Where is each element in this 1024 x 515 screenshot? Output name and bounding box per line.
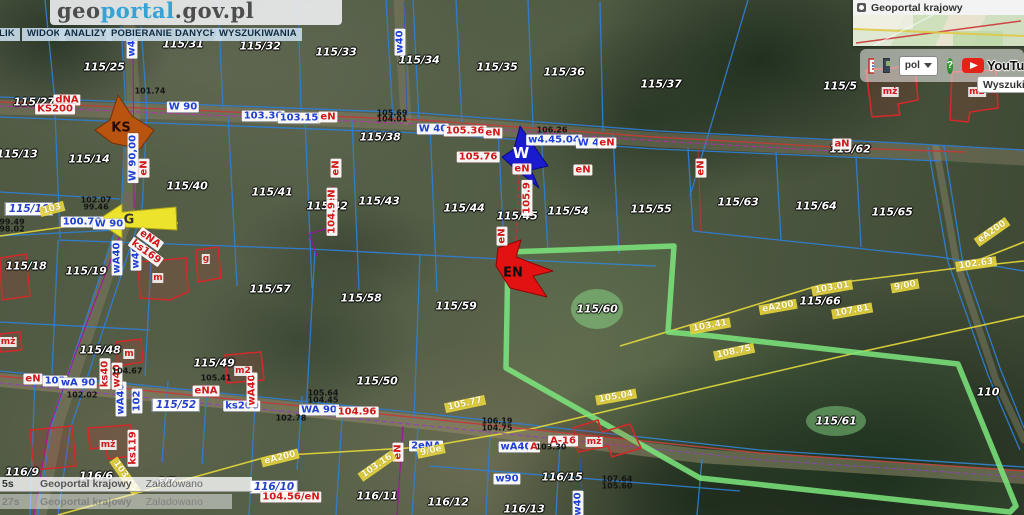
parcel-label: 115/43 bbox=[358, 195, 399, 208]
utility-label-red-vertical: ks40 bbox=[100, 359, 111, 390]
logo-text: geo bbox=[57, 0, 101, 23]
parcel-label: 115/48 bbox=[79, 344, 120, 357]
powerline-label-yellow: 108.75 bbox=[713, 343, 755, 361]
parcel-label: 115/40 bbox=[166, 180, 207, 193]
powerline-label-yellow: eA200 bbox=[974, 217, 1011, 247]
utility-label-red: 105.76 bbox=[457, 152, 500, 163]
building-label: g bbox=[202, 254, 210, 264]
parcel-label: 115/44 bbox=[443, 202, 484, 215]
en-marker-label: EN bbox=[503, 266, 523, 281]
parcel-label: 115/35 bbox=[476, 61, 517, 74]
powerline-label-yellow: 103.16 bbox=[357, 450, 396, 482]
parcel-label: 115/63 bbox=[717, 196, 758, 209]
youtube-button[interactable]: YouTu bbox=[962, 58, 1024, 73]
language-select[interactable]: pol bbox=[899, 56, 938, 76]
load-status: Załadowano bbox=[146, 478, 203, 490]
load-status: Załadowano bbox=[146, 496, 203, 508]
map-canvas[interactable]: 115/31115/32115/25115/33115/34115/35115/… bbox=[0, 0, 1024, 515]
powerline-label-yellow: 9/00 bbox=[890, 279, 919, 294]
powerline-label-yellow: 105.77 bbox=[444, 395, 486, 413]
utility-label-red-vertical: 104.9 bbox=[327, 200, 338, 236]
parcel-label: 115/33 bbox=[315, 46, 356, 59]
utility-label-red: eN bbox=[318, 112, 337, 123]
parcel-label: 115/58 bbox=[340, 292, 381, 305]
parcel-label: 115/65 bbox=[871, 206, 912, 219]
overview-map-panel[interactable]: Geoportal krajowy bbox=[853, 0, 1024, 46]
building-label: mż bbox=[0, 337, 16, 347]
utility-label-red: eN bbox=[23, 374, 42, 385]
minimap-content bbox=[853, 15, 1024, 46]
logo-text: portal bbox=[101, 0, 175, 23]
utility-label-blue: wA 90 bbox=[59, 378, 97, 389]
status-bar-row: 5s Geoportal krajowy Załadowano bbox=[0, 477, 252, 492]
building-label: m bbox=[152, 273, 163, 283]
utility-label-red: 105.36 bbox=[444, 126, 487, 137]
elevation-label: 102.02 bbox=[67, 391, 98, 400]
utility-label-red: eN bbox=[573, 165, 592, 176]
utility-label-blue-vertical: W 90,00 bbox=[128, 133, 139, 183]
utility-label-red: eNA bbox=[193, 386, 220, 397]
load-time: 27s bbox=[0, 496, 28, 508]
building-label: m2 bbox=[234, 366, 252, 376]
menu-item-analizy[interactable]: ANALIZY bbox=[59, 28, 112, 41]
g-marker-label: G bbox=[124, 213, 135, 228]
utility-label-red-vertical: wA40 bbox=[247, 373, 258, 408]
menu-item-plik[interactable]: LIK bbox=[0, 28, 20, 41]
parcel-label: 116/12 bbox=[427, 496, 468, 509]
powerline-label-yellow: eA200 bbox=[260, 449, 299, 468]
parcel-label: 115/57 bbox=[249, 283, 290, 296]
utility-label-blue: 103.15 bbox=[278, 113, 321, 124]
parcel-label: 115/19 bbox=[65, 265, 106, 278]
parcel-label: 115/41 bbox=[251, 186, 292, 199]
utility-label-red: 104.56/eN bbox=[260, 492, 321, 503]
elevation-label: 98.02 bbox=[0, 225, 25, 234]
parcel-label: 115/25 bbox=[83, 61, 124, 74]
utility-label-red: eN bbox=[483, 128, 502, 139]
utility-label-red-vertical: ks119 bbox=[128, 429, 139, 466]
utility-label-blue-vertical: 102 bbox=[132, 389, 143, 414]
elevation-label: 101.74 bbox=[135, 87, 166, 96]
parcel-label: 115/50 bbox=[356, 375, 397, 388]
layer-source: Geoportal krajowy bbox=[40, 478, 132, 490]
building-label: mż bbox=[882, 87, 899, 97]
elevation-label: 104.01 bbox=[377, 115, 408, 124]
map-preview-icon[interactable] bbox=[883, 58, 890, 73]
geoportal-mini-icon bbox=[857, 3, 866, 12]
parcel-label: 115/18 bbox=[5, 260, 46, 273]
powerline-label-yellow: 102.63 bbox=[955, 256, 997, 272]
help-button[interactable]: ? bbox=[947, 58, 953, 74]
status-bar-row: 27s Geoportal krajowy Załadowano bbox=[0, 494, 232, 509]
chevron-down-icon bbox=[924, 63, 932, 68]
elevation-label: 105.60 bbox=[602, 482, 633, 491]
utility-label-red: KS200 bbox=[35, 104, 75, 115]
utility-label-red: 104.96 bbox=[336, 407, 379, 418]
load-time: 5s bbox=[0, 478, 28, 490]
parcel-label: 115/61 bbox=[815, 415, 856, 428]
elevation-label: 106.26 bbox=[537, 126, 568, 135]
utility-label-blue: w90 bbox=[493, 474, 520, 485]
parcel-label: 115/66 bbox=[799, 295, 840, 308]
utility-label-red-vertical: eN bbox=[696, 158, 707, 177]
elevation-label: 104.45 bbox=[308, 396, 339, 405]
parcel-label: 115/55 bbox=[630, 203, 671, 216]
utility-label-blue: w4.45.04 bbox=[526, 135, 582, 146]
elevation-label: 99.46 bbox=[83, 203, 108, 212]
parcel-label: 115/49 bbox=[193, 357, 234, 370]
parcel-label: 115/38 bbox=[359, 131, 400, 144]
overview-map-header: Geoportal krajowy bbox=[853, 0, 1024, 15]
utility-label-red-vertical: eN bbox=[139, 158, 150, 177]
geoportal-logo: geoportal.gov.pl bbox=[57, 0, 254, 23]
utility-label-blue: W 90 bbox=[93, 219, 125, 230]
utility-label-red: eN bbox=[512, 164, 531, 175]
parcel-label: 116/15 bbox=[541, 471, 582, 484]
utility-label-blue-vertical: w40 bbox=[573, 490, 584, 515]
w-marker-label: W bbox=[513, 144, 530, 162]
road-parcel-label: 115/52 bbox=[152, 398, 200, 412]
utility-label-blue-vertical: w40 bbox=[395, 28, 406, 55]
logo-text: .gov.pl bbox=[175, 0, 255, 23]
building-label: mż bbox=[586, 437, 603, 447]
overview-minimap[interactable] bbox=[853, 15, 1024, 46]
powerline-label-yellow: 105.04 bbox=[595, 389, 637, 406]
parcel-label: 110 bbox=[977, 386, 999, 399]
legend-icon[interactable] bbox=[868, 58, 874, 74]
menu-item-wyszukiwania[interactable]: WYSZUKIWANIA bbox=[214, 28, 302, 41]
parcel-label: 115/13 bbox=[0, 148, 38, 161]
utility-label-red-vertical: 105.9 bbox=[522, 180, 533, 216]
elevation-label: 104.75 bbox=[482, 424, 513, 433]
parcel-label: 116/11 bbox=[356, 490, 397, 503]
search-panel-button[interactable]: Wyszukiw bbox=[977, 76, 1024, 93]
youtube-label: YouTu bbox=[987, 58, 1024, 73]
parcel-label: 115/60 bbox=[576, 303, 617, 316]
parcel-label: 115/37 bbox=[640, 78, 681, 91]
overview-map-title: Geoportal krajowy bbox=[871, 2, 963, 14]
language-value: pol bbox=[905, 60, 920, 71]
parcel-label: 115/36 bbox=[543, 66, 584, 79]
elevation-label: 102.78 bbox=[276, 414, 307, 423]
utility-label-red: eN bbox=[597, 138, 616, 149]
building-label: m bbox=[123, 349, 134, 359]
powerline-label-yellow: 103.41 bbox=[689, 318, 731, 335]
ks-marker-label: KS bbox=[111, 121, 130, 136]
utility-label-blue: W 90 bbox=[167, 102, 199, 113]
utility-label-blue-vertical: wA40 bbox=[112, 241, 123, 276]
parcel-label: 116/13 bbox=[503, 503, 544, 515]
elevation-label: 105.41 bbox=[201, 374, 232, 383]
menu-item-pobieranie-danych[interactable]: POBIERANIE DANYCH bbox=[106, 28, 222, 41]
parcel-label: 115/14 bbox=[68, 153, 109, 166]
powerline-label-yellow: eA200 bbox=[758, 299, 797, 315]
elevation-label: 103.30 bbox=[536, 443, 567, 452]
parcel-label: 115/54 bbox=[547, 205, 588, 218]
utility-label-red-vertical: eN bbox=[497, 226, 508, 245]
parcel-label: 115/64 bbox=[795, 200, 836, 213]
parcel-label: 115/5 bbox=[823, 80, 857, 93]
utility-label-red-vertical: eN bbox=[331, 158, 342, 177]
parcel-label: 115/59 bbox=[435, 300, 476, 313]
utility-label-red: aN bbox=[832, 139, 851, 150]
youtube-icon bbox=[962, 58, 984, 73]
building-label: mż bbox=[100, 440, 117, 450]
parcel-label: 115/32 bbox=[239, 40, 280, 53]
layer-source: Geoportal krajowy bbox=[40, 496, 132, 508]
elevation-label: 104.67 bbox=[112, 367, 143, 376]
